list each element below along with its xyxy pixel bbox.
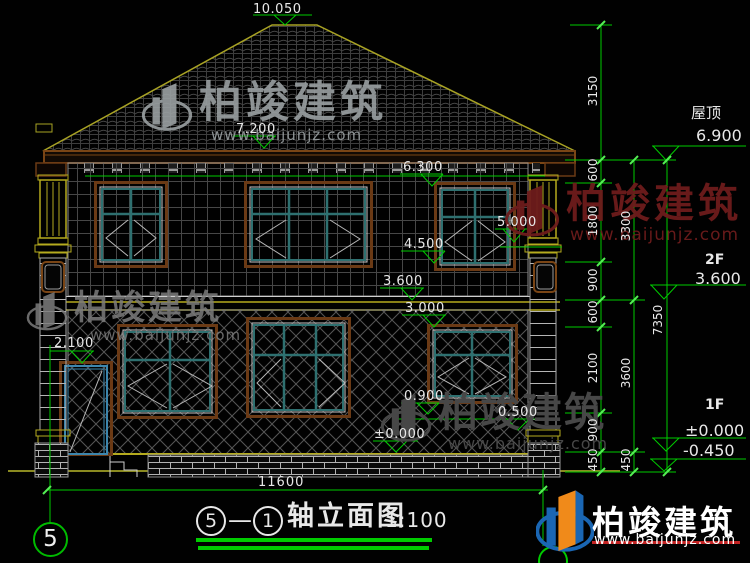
level-elev-1f: ±0.000 [685,423,744,439]
eave-bracket-left [36,163,66,176]
axis-bubble-5: 5 [33,522,68,557]
title-underline [196,538,432,542]
dim-label: 3600 [620,341,632,405]
spot-elevation-label: 5.000 [497,216,537,229]
title-underline-2 [198,546,429,550]
cad-elevation-screenshot: 柏竣建筑 www.baijunjz.com 柏竣建筑 www.baijunjz.… [0,0,750,563]
floor-band [66,297,560,311]
spot-elevation-label: 2.100 [54,337,94,350]
brand-url: www.baijunjz.com [594,532,736,548]
dim-label: 1800 [587,189,599,253]
level-elev-roof: 6.900 [696,128,742,144]
eave-bracket-right [545,163,575,176]
plinth [60,454,528,477]
dim-label: 7350 [652,288,664,352]
spot-elevation-label: 10.050 [253,3,302,16]
title-axis-end-circle: 1 [253,506,283,536]
dim-label: 3300 [620,194,632,258]
roof [36,25,575,176]
total-width-dim: 11600 [258,476,304,489]
level-label-2f: 2F [705,253,724,267]
dim-label: 450 [620,428,632,492]
dim-label: 2100 [587,336,599,400]
level-label-roof: 屋顶 [691,106,721,121]
spot-elevation-label: 0.900 [404,390,444,403]
title-dash: — [228,508,252,532]
spot-elevation-label: ±0.000 [374,428,425,441]
level-elev-2f: 3.600 [695,271,741,287]
spot-elevation-label: 0.500 [498,406,538,419]
brand-logo-icon [536,486,594,558]
brand-footer: 柏竣建筑 www.baijunjz.com [536,486,750,563]
axis-bubble-number: 5 [43,526,58,552]
dim-label: 450 [587,428,599,492]
entry-steps [110,455,137,477]
drawing-scale: 1:100 [385,510,448,530]
title-axis-end: 1 [262,510,274,532]
spot-elevation-label: 4.500 [404,238,444,251]
dim-label: 600 [587,280,599,344]
spot-elevation-label: 3.600 [383,275,423,288]
spot-elevation-label: 6.300 [403,161,443,174]
dim-label: 3150 [587,59,599,123]
level-label-1f: 1F [705,398,724,412]
title-axis-start: 5 [205,510,217,532]
title-axis-start-circle: 5 [196,506,226,536]
level-elev-ground: -0.450 [683,443,735,459]
spot-elevation-label: 3.000 [405,302,445,315]
elevation-drawing [0,0,750,563]
spot-elevation-label: 7.200 [236,123,276,136]
